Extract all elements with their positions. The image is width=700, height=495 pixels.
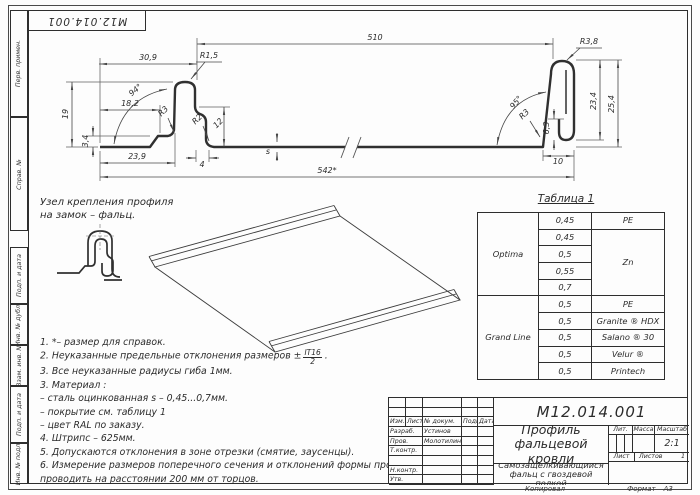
part-subname-text: Самозащёлкивающийся фальц с гвоздевой по… <box>494 464 608 485</box>
tolerance-fraction: IT162 <box>303 349 321 365</box>
dim-label: R1,5 <box>200 51 218 60</box>
doc-number-text: М12.014.001 <box>537 403 647 421</box>
title-block-name: Профиль фальцевой кровли <box>494 426 609 464</box>
coating-cell: Printech <box>592 363 665 380</box>
sheet-label: Лист <box>614 453 630 460</box>
sheet-cell: Лист <box>609 453 635 462</box>
lit-header: Лит. <box>609 426 633 435</box>
title-block-cell <box>462 446 478 456</box>
lit-cell-2 <box>617 435 625 453</box>
scale-header: Масштаб <box>655 426 689 435</box>
title-block-cell <box>423 408 462 418</box>
mass-label: Масса <box>633 426 653 433</box>
format-word: Формат <box>627 485 655 493</box>
title-block-cell <box>423 466 462 476</box>
iso-view <box>149 206 460 353</box>
title-block-cell <box>462 427 478 437</box>
dim-label: R3,8 <box>580 37 598 46</box>
note-line: 2. Неуказанные предельные отклонения раз… <box>40 349 476 365</box>
title-block-cell: Дата <box>478 417 494 427</box>
title-block-docnum: М12.014.001 <box>494 398 689 426</box>
thickness-cell: 0,5 <box>539 363 592 380</box>
dim-label: 23,9 <box>128 152 146 161</box>
table1-title: Таблица 1 <box>477 193 655 205</box>
title-block-row <box>389 456 494 466</box>
lit-cell-1 <box>609 435 617 453</box>
table-row: Optima0,45PE <box>478 213 665 230</box>
dim-label: 94° <box>127 82 144 98</box>
title-block-cell <box>389 408 406 418</box>
coating-cell: Salano ® 30 <box>592 329 665 346</box>
title-block-subname: Самозащёлкивающийся фальц с гвоздевой по… <box>494 464 609 485</box>
sheets-label: Листов <box>639 453 663 461</box>
brand-cell: Optima <box>478 213 539 296</box>
title-block-row: Т.контр. <box>389 446 494 456</box>
title-block-cell <box>478 466 494 476</box>
detail-callout: Узел крепления профиля на замок – фальц. <box>40 196 210 222</box>
title-block-cell <box>478 456 494 466</box>
title-block-cell <box>478 408 494 418</box>
sheets-value: 1 <box>681 453 685 461</box>
dim-label: 6,3 <box>542 122 551 135</box>
title-block-cell <box>389 398 406 408</box>
copied-label: Копировал <box>500 485 590 493</box>
thickness-cell: 0,5 <box>539 329 592 346</box>
dim-label: 19 <box>61 109 70 119</box>
title-block-cell <box>462 408 478 418</box>
lit-label: Лит. <box>613 426 628 433</box>
note-line: 1. *– размер для справок. <box>40 336 476 349</box>
thickness-cell: 0,5 <box>539 246 592 263</box>
note-line: 3. Все неуказанные радиусы гиба 1мм. <box>40 365 476 378</box>
dim-label: 23,4 <box>589 92 598 110</box>
drawing-sheet: Перв. примен.Справ. №Подп. и датаИнв. № … <box>0 0 700 495</box>
title-block-cell: Лист <box>406 417 423 427</box>
title-block-row: Разраб.Устинов <box>389 427 494 437</box>
table1-grid: Optima0,45PE0,45Zn0,50,550,7Grand Line0,… <box>477 212 665 380</box>
detail-callout-line1: Узел крепления профиля <box>40 196 210 209</box>
coating-cell: PE <box>592 296 665 313</box>
dimension-lines <box>72 44 618 177</box>
dim-label: 95° <box>508 94 524 111</box>
title-block-row: Н.контр. <box>389 466 494 476</box>
part-name-text: Профиль фальцевой кровли <box>494 426 608 464</box>
title-block-cell <box>478 398 494 408</box>
dim-label: 4 <box>199 160 204 169</box>
title-block-cell <box>462 456 478 466</box>
title-block-cell <box>423 446 462 456</box>
title-block-row <box>389 398 494 408</box>
title-block-cell <box>462 466 478 476</box>
title-block-cell <box>406 408 423 418</box>
coating-cell: Zn <box>592 229 665 296</box>
thickness-cell: 0,45 <box>539 213 592 230</box>
scale-cell: 2:1 <box>655 435 689 453</box>
dim-label: 10 <box>553 157 563 166</box>
dim-label: 510 <box>367 33 382 42</box>
title-block-row: Пров.Молотилин <box>389 437 494 447</box>
scale-value: 2:1 <box>664 438 679 449</box>
title-block-row: Изм.Лист№ докум.Подп.Дата <box>389 417 494 427</box>
title-block-cell <box>478 427 494 437</box>
dim-label: R3 <box>156 104 170 118</box>
coating-cell: Velur ® <box>592 346 665 363</box>
title-block-cell: Молотилин <box>423 437 462 447</box>
dim-label: 18,2 <box>121 99 139 108</box>
detail-centerlines <box>86 224 114 250</box>
brand-cell: Grand Line <box>478 296 539 379</box>
angle-arcs <box>114 89 546 145</box>
dim-label: 25,4 <box>607 95 616 113</box>
title-block-cell <box>462 475 478 485</box>
title-block-cell: Утв. <box>389 475 423 485</box>
title-block-cell <box>478 475 494 485</box>
thickness-cell: 0,5 <box>539 296 592 313</box>
thickness-cell: 0,5 <box>539 313 592 330</box>
title-block-cell <box>389 456 423 466</box>
title-block-cell <box>423 475 462 485</box>
note-line: 3. Материал : <box>40 379 476 392</box>
dim-label: s <box>266 147 270 156</box>
detail-callout-line2: на замок – фальц. <box>40 209 210 222</box>
table-row: Grand Line0,5PE <box>478 296 665 313</box>
thickness-cell: 0,5 <box>539 346 592 363</box>
scale-label: Масштаб <box>657 426 687 433</box>
dim-label: 3,4 <box>81 135 90 148</box>
title-block-cell <box>462 398 478 408</box>
title-block-cell <box>478 437 494 447</box>
lit-cell-3 <box>625 435 633 453</box>
title-block-cell <box>423 398 462 408</box>
title-block-cell <box>478 446 494 456</box>
format-label: Формат А3 <box>612 485 688 493</box>
title-block-signatures: Изм.Лист№ докум.Подп.ДатаРазраб.УстиновП… <box>389 398 494 485</box>
dim-label: R3 <box>517 107 531 121</box>
dim-label: 12 <box>211 116 225 130</box>
title-block-cell <box>462 437 478 447</box>
title-block-cell <box>423 456 462 466</box>
title-block-cell: Подп. <box>462 417 478 427</box>
profile-path <box>100 61 574 147</box>
mass-cell <box>633 435 655 453</box>
coating-cell: PE <box>592 213 665 230</box>
title-block-cell: № докум. <box>423 417 462 427</box>
title-block-cell: Пров. <box>389 437 423 447</box>
format-value: А3 <box>664 485 673 493</box>
sheets-cell: Листов 1 <box>635 453 689 462</box>
coating-cell: Granite ® HDX <box>592 313 665 330</box>
main-section-view: 30,9510R1,5R3,894°95°18,2193,423,9412R2R… <box>61 33 622 181</box>
title-block-cell: Устинов <box>423 427 462 437</box>
title-block-cell: Изм. <box>389 417 406 427</box>
dim-label: 30,9 <box>139 53 157 62</box>
mass-header: Масса <box>633 426 655 435</box>
title-block-row: Утв. <box>389 475 494 485</box>
thickness-cell: 0,55 <box>539 263 592 280</box>
dimension-labels: 30,9510R1,5R3,894°95°18,2193,423,9412R2R… <box>61 33 616 175</box>
title-block-cell: Т.контр. <box>389 446 423 456</box>
dim-label: 542* <box>317 166 336 175</box>
table1: Optima0,45PE0,45Zn0,50,550,7Grand Line0,… <box>477 212 665 380</box>
title-block-cell: Разраб. <box>389 427 423 437</box>
org-cell <box>609 462 689 485</box>
thickness-cell: 0,45 <box>539 229 592 246</box>
title-block-cell: Н.контр. <box>389 466 423 476</box>
title-block-row <box>389 408 494 418</box>
thickness-cell: 0,7 <box>539 279 592 296</box>
lock-detail-view <box>57 224 122 280</box>
title-block: Изм.Лист№ докум.Подп.ДатаРазраб.УстиновП… <box>388 397 688 484</box>
title-block-cell <box>406 398 423 408</box>
